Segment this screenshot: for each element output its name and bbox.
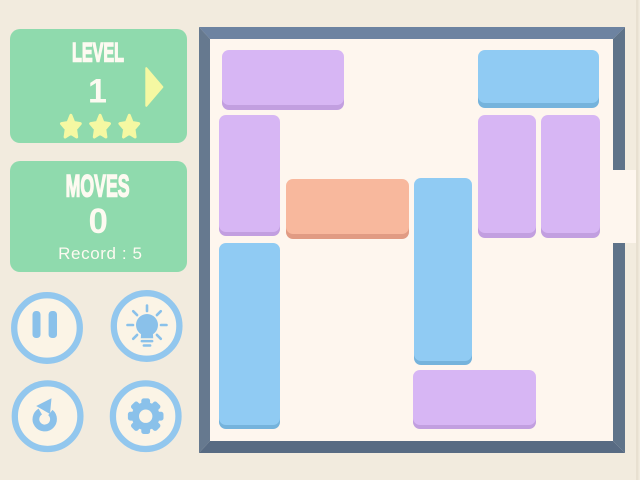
svg-text:LEVEL: LEVEL — [72, 38, 124, 68]
svg-text:MOVES: MOVES — [66, 168, 130, 204]
svg-text:0: 0 — [88, 202, 107, 241]
svg-text:Record : 5: Record : 5 — [58, 244, 142, 263]
svg-text:1: 1 — [88, 73, 107, 111]
